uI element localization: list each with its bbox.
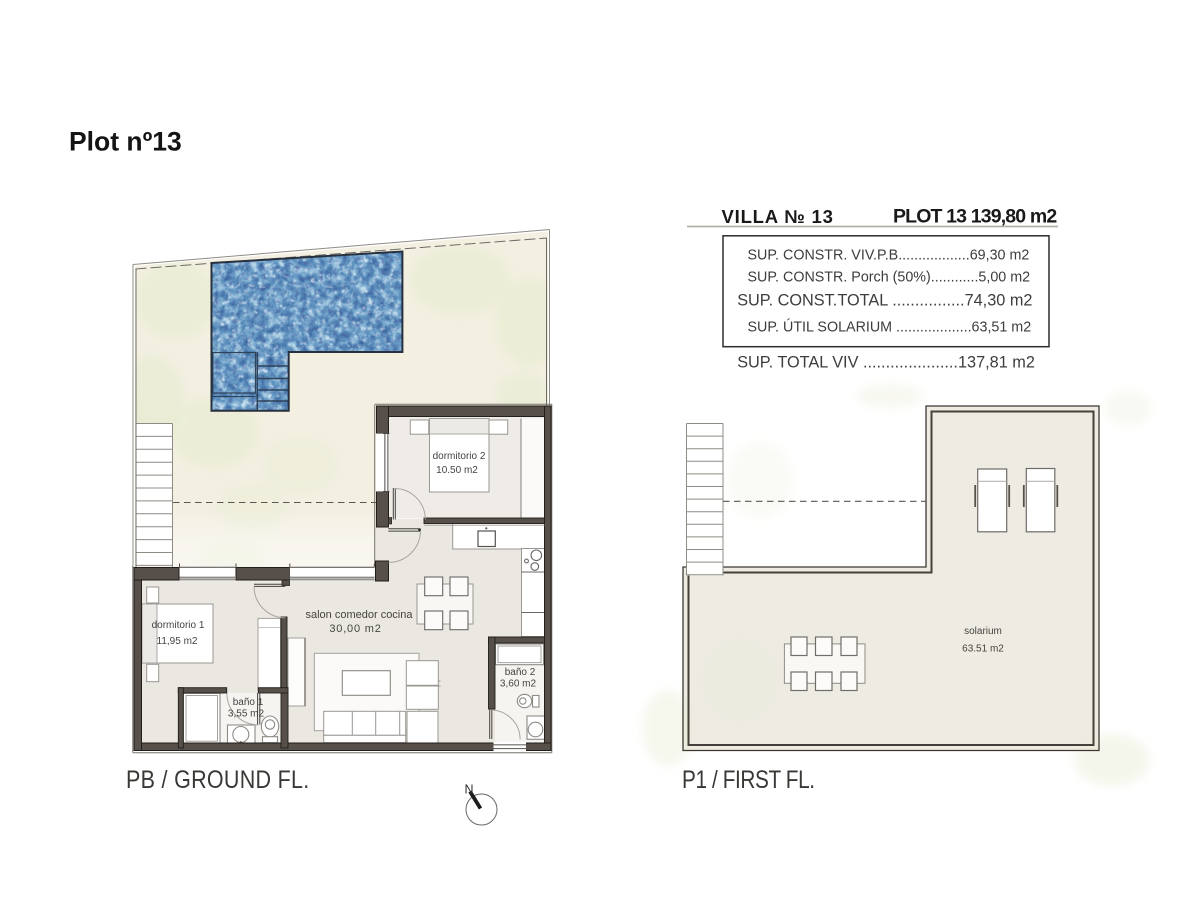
svg-text:63.51 m2: 63.51 m2 (962, 644, 1004, 655)
svg-text:3,60 m2: 3,60 m2 (500, 679, 537, 690)
svg-text:SUP. TOTAL VIV ...............: SUP. TOTAL VIV .....................137,… (737, 354, 1035, 372)
svg-text:solarium: solarium (964, 626, 1002, 637)
svg-text:3,55 m2: 3,55 m2 (228, 709, 265, 720)
svg-text:SUP. CONST.TOTAL .............: SUP. CONST.TOTAL ................74,30 m… (737, 291, 1032, 309)
svg-text:SUP. CONSTR. Porch (50%)......: SUP. CONSTR. Porch (50%)............5,00… (748, 270, 1031, 286)
svg-text:salon comedor cocina: salon comedor cocina (305, 609, 413, 621)
svg-text:Plot nº13: Plot nº13 (69, 127, 182, 157)
svg-text:30,00 m2: 30,00 m2 (329, 623, 381, 635)
svg-text:PB / GROUND FL.: PB / GROUND FL. (126, 765, 310, 793)
svg-text:baño 2: baño 2 (505, 667, 536, 678)
svg-text:P1 / FIRST FL.: P1 / FIRST FL. (682, 765, 815, 793)
svg-text:VILLA № 13: VILLA № 13 (722, 206, 834, 227)
svg-text:dormitorio 1: dormitorio 1 (152, 620, 205, 631)
svg-text:11,95 m2: 11,95 m2 (157, 636, 198, 647)
svg-text:SUP. ÚTIL SOLARIUM ...........: SUP. ÚTIL SOLARIUM ...................63… (748, 319, 1032, 336)
svg-text:SUP. CONSTR. VIV.P.B..........: SUP. CONSTR. VIV.P.B..................69… (748, 248, 1030, 264)
svg-text:10.50 m2: 10.50 m2 (436, 465, 478, 476)
svg-text:PLOT 13 139,80 m2: PLOT 13 139,80 m2 (893, 206, 1057, 228)
svg-text:N: N (464, 783, 473, 797)
svg-text:baño 1: baño 1 (233, 697, 264, 708)
svg-text:dormitorio 2: dormitorio 2 (433, 451, 486, 462)
